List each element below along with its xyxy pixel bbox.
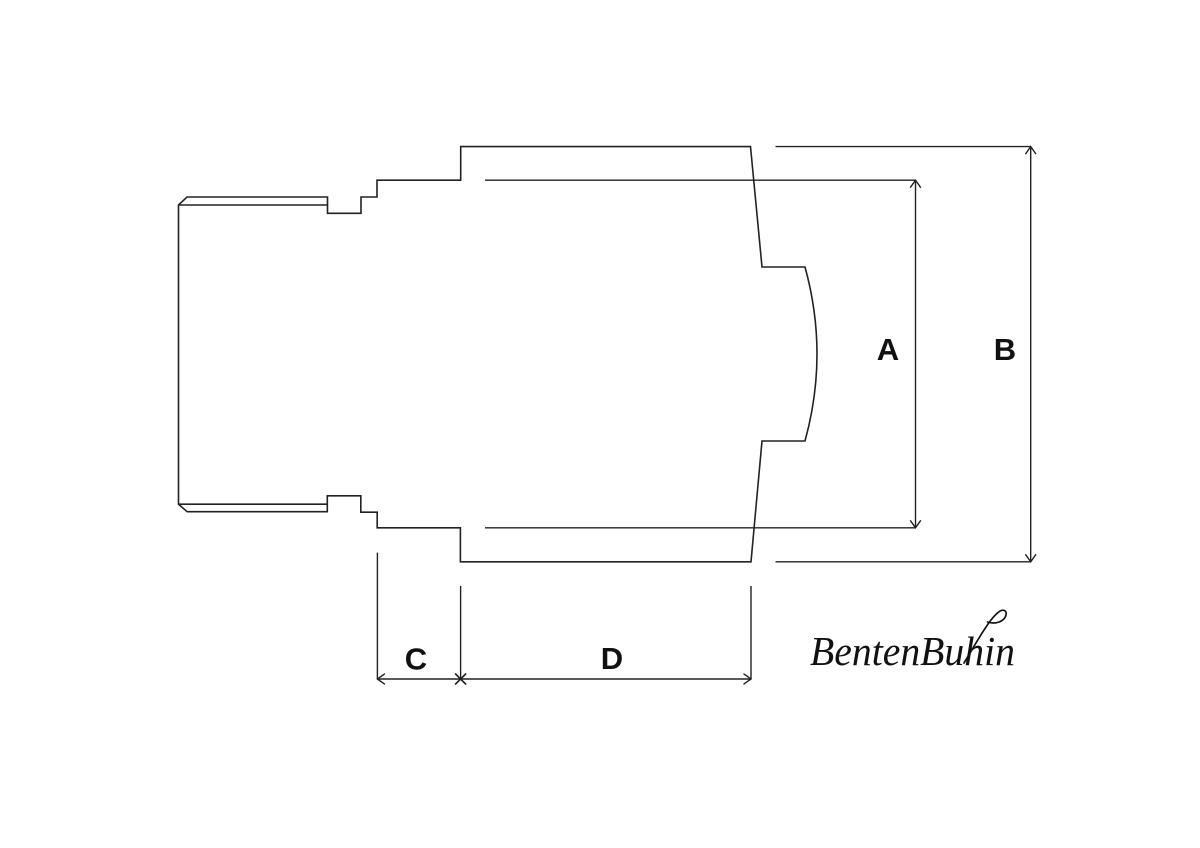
- svg-text:BentenBuhin: BentenBuhin: [810, 628, 1015, 674]
- svg-text:B: B: [994, 332, 1016, 367]
- svg-text:C: C: [405, 642, 427, 677]
- svg-text:D: D: [601, 641, 623, 676]
- svg-text:A: A: [877, 332, 899, 367]
